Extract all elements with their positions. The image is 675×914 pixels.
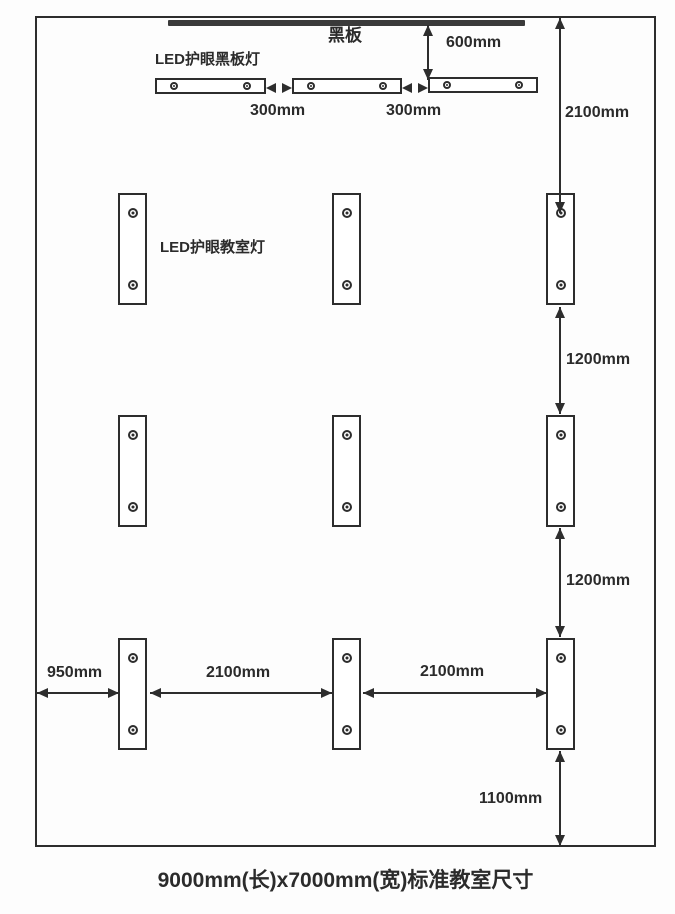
fixture-hole — [342, 502, 352, 512]
fixture-hole — [556, 280, 566, 290]
classroom-light — [118, 638, 147, 750]
blackboard-label: 黑板 — [328, 27, 362, 45]
fixture-hole — [342, 653, 352, 663]
blackboard-light-fixture — [292, 78, 402, 94]
fixture-hole — [379, 82, 387, 90]
dim-label-300mm-2: 300mm — [386, 103, 441, 120]
fixture-hole — [307, 82, 315, 90]
fixture-hole — [243, 82, 251, 90]
fixture-hole — [556, 653, 566, 663]
dimension-arrow-2100mm-1 — [150, 692, 332, 694]
dimension-arrow-2100mm-2 — [363, 692, 547, 694]
classroom-light — [546, 638, 575, 750]
fixture-hole — [128, 653, 138, 663]
dimension-arrow-600mm — [427, 25, 429, 80]
dim-label-1200mm-2: 1200mm — [566, 573, 630, 590]
classroom-light — [118, 415, 147, 527]
dim-label-1100mm: 1100mm — [479, 791, 542, 808]
fixture-hole — [342, 430, 352, 440]
gap-arrowhead-right — [418, 83, 428, 93]
classroom-light — [118, 193, 147, 305]
dim-label-300mm-1: 300mm — [250, 103, 305, 120]
fixture-hole — [128, 502, 138, 512]
diagram-caption: 9000mm(长)x7000mm(宽)标准教室尺寸 — [35, 864, 656, 894]
gap-arrowhead-left — [402, 83, 412, 93]
fixture-hole — [342, 208, 352, 218]
dim-label-2100mm-1: 2100mm — [206, 665, 270, 682]
fixture-hole — [342, 280, 352, 290]
classroom-light-label: LED护眼教室灯 — [160, 240, 265, 256]
dimension-arrow-1200mm-2 — [559, 528, 561, 637]
fixture-hole — [443, 81, 451, 89]
fixture-hole — [342, 725, 352, 735]
classroom-lighting-diagram: 黑板 LED护眼黑板灯 600mm 300mm 300mm 2100mm LED… — [0, 0, 675, 914]
fixture-hole — [515, 81, 523, 89]
dimension-arrow-2100mm-top — [559, 18, 561, 213]
classroom-light — [546, 415, 575, 527]
blackboard-light-fixture — [428, 77, 538, 93]
fixture-hole — [556, 430, 566, 440]
dim-label-1200mm-1: 1200mm — [566, 352, 630, 369]
dimension-arrow-1100mm — [559, 751, 561, 846]
dimension-arrow-950mm — [37, 692, 119, 694]
fixture-hole — [556, 725, 566, 735]
blackboard-light-label: LED护眼黑板灯 — [155, 52, 260, 68]
classroom-light — [332, 415, 361, 527]
gap-arrowhead-left — [266, 83, 276, 93]
fixture-hole — [170, 82, 178, 90]
fixture-hole — [128, 280, 138, 290]
gap-arrowhead-right — [282, 83, 292, 93]
dim-label-950mm: 950mm — [47, 665, 102, 682]
fixture-hole — [128, 430, 138, 440]
dim-label-600mm: 600mm — [446, 35, 501, 52]
fixture-hole — [556, 502, 566, 512]
dim-label-2100mm-2: 2100mm — [420, 664, 484, 681]
fixture-hole — [128, 725, 138, 735]
dim-label-2100mm-top: 2100mm — [565, 105, 629, 122]
fixture-hole — [128, 208, 138, 218]
classroom-light — [332, 193, 361, 305]
dimension-arrow-1200mm-1 — [559, 307, 561, 414]
blackboard-light-fixture — [155, 78, 266, 94]
classroom-light — [332, 638, 361, 750]
